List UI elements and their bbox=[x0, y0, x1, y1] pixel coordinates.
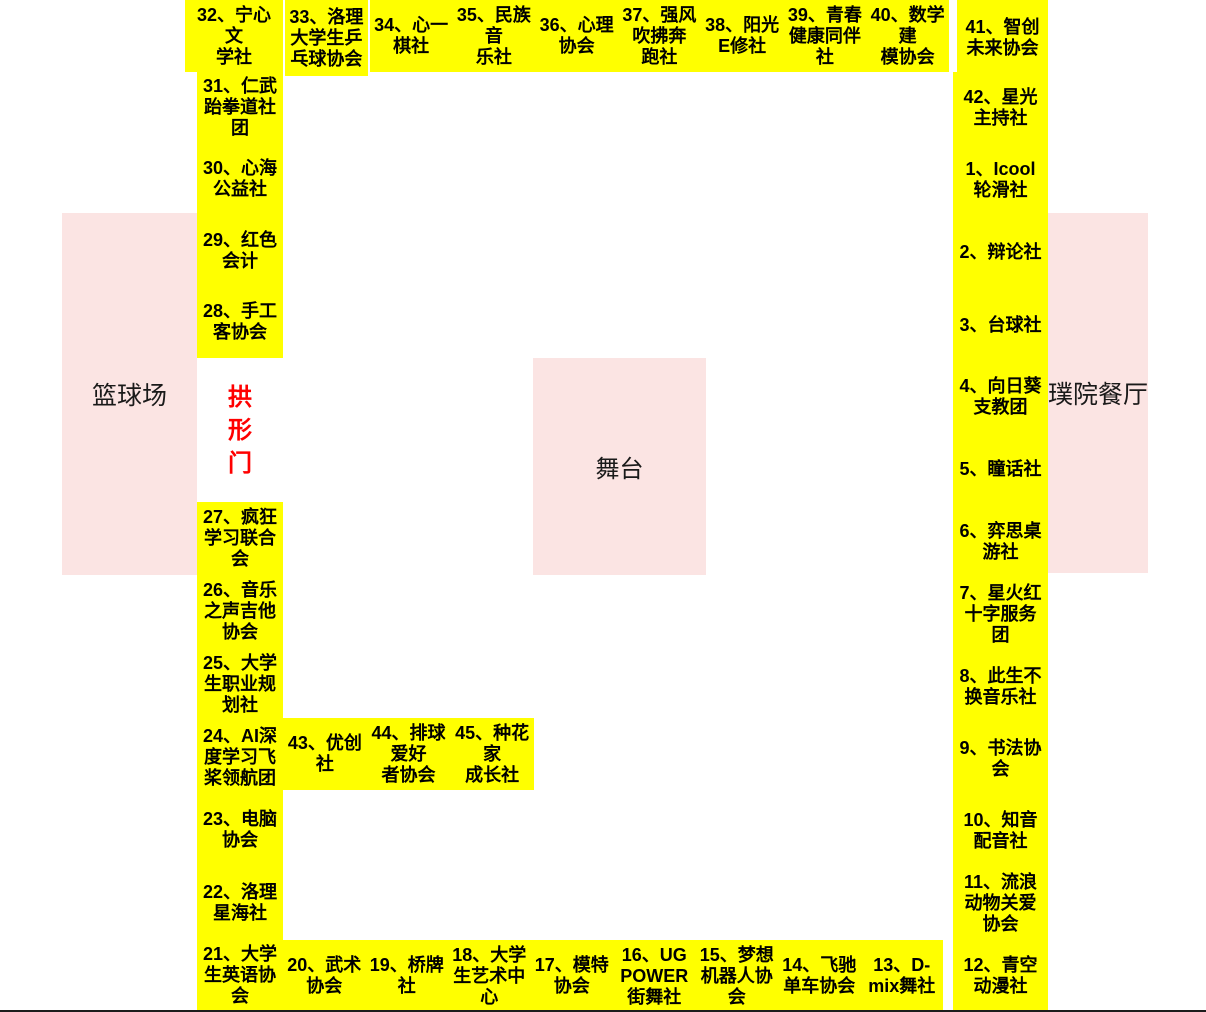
booth-36: 36、心理 协会 bbox=[535, 0, 618, 72]
booth-16: 16、UG POWER 街舞社 bbox=[613, 940, 696, 1012]
booth-20: 20、武术 协会 bbox=[283, 940, 366, 1012]
booth-8: 8、此生不 换音乐社 bbox=[953, 651, 1048, 723]
booth-15: 15、梦想 机器人协 会 bbox=[696, 940, 779, 1012]
bottom-booth-row: 20、武术 协会 19、桥牌 社 18、大学 生艺术中 心 17、模特 协会 1… bbox=[283, 940, 943, 1012]
club-fair-layout-map: 篮球场 舞台 璞院餐厅 拱 形 门 32、宁心 文 学社 33、洛理 大学生乒 … bbox=[0, 0, 1206, 1012]
booth-33: 33、洛理 大学生乒 乓球协会 bbox=[283, 0, 370, 76]
arch-gate-label: 拱 形 门 bbox=[197, 358, 283, 502]
booth-28: 28、手工 客协会 bbox=[197, 287, 283, 359]
restaurant-area: 璞院餐厅 bbox=[1048, 213, 1148, 573]
booth-17: 17、模特 协会 bbox=[531, 940, 614, 1012]
booth-3: 3、台球社 bbox=[953, 289, 1048, 361]
top-booth-row: 32、宁心 文 学社 33、洛理 大学生乒 乓球协会 34、心一 棋社 35、民… bbox=[185, 0, 1048, 72]
booth-45: 45、种花 家 成长社 bbox=[450, 718, 534, 790]
booth-27: 27、疯狂 学习联合 会 bbox=[197, 502, 283, 575]
booth-6: 6、弈思桌 游社 bbox=[953, 506, 1048, 578]
booth-39: 39、青春 健康同伴 社 bbox=[784, 0, 867, 72]
booth-7: 7、星火红 十字服务 团 bbox=[953, 578, 1048, 650]
booth-24: 24、AI深 度学习飞 桨领航团 bbox=[197, 721, 283, 794]
booth-12: 12、青空 动漫社 bbox=[953, 940, 1048, 1012]
booth-40: 40、数学 建 模协会 bbox=[866, 0, 949, 72]
booth-22: 22、洛理 星海社 bbox=[197, 866, 283, 939]
booth-18: 18、大学 生艺术中 心 bbox=[448, 940, 531, 1012]
booth-14: 14、飞驰 单车协会 bbox=[778, 940, 861, 1012]
left-booth-column-lower: 27、疯狂 学习联合 会 26、音乐 之声吉他 协会 25、大学 生职业规 划社… bbox=[197, 502, 283, 1012]
stage-label: 舞台 bbox=[596, 449, 644, 484]
booth-9: 9、书法协 会 bbox=[953, 723, 1048, 795]
booth-34: 34、心一 棋社 bbox=[370, 0, 453, 72]
booth-11: 11、流浪 动物关爱 协会 bbox=[953, 867, 1048, 939]
booth-42: 42、星光 主持社 bbox=[953, 72, 1048, 144]
booth-32: 32、宁心 文 学社 bbox=[185, 0, 283, 72]
booth-26: 26、音乐 之声吉他 协会 bbox=[197, 575, 283, 648]
booth-38: 38、阳光 E修社 bbox=[701, 0, 784, 72]
booth-2: 2、辩论社 bbox=[953, 217, 1048, 289]
booth-35: 35、民族 音 乐社 bbox=[453, 0, 536, 72]
booth-37: 37、强风 吹拂奔 跑社 bbox=[618, 0, 701, 72]
left-booth-column-upper: 31、仁武 跆拳道社 团 30、心海 公益社 29、红色 会计 28、手工 客协… bbox=[197, 72, 283, 358]
booth-19: 19、桥牌 社 bbox=[366, 940, 449, 1012]
booth-23: 23、电脑 协会 bbox=[197, 793, 283, 866]
booth-43: 43、优创社 bbox=[283, 718, 367, 790]
restaurant-label: 璞院餐厅 bbox=[1048, 375, 1148, 411]
booth-25: 25、大学 生职业规 划社 bbox=[197, 648, 283, 721]
booth-13: 13、D- mix舞社 bbox=[861, 940, 944, 1012]
booth-1: 1、Icool 轮滑社 bbox=[953, 144, 1048, 216]
basketball-court-area: 篮球场 bbox=[62, 213, 197, 575]
booth-30: 30、心海 公益社 bbox=[197, 144, 283, 216]
booth-5: 5、瞳话社 bbox=[953, 434, 1048, 506]
middle-booth-row: 43、优创社 44、排球 爱好 者协会 45、种花 家 成长社 bbox=[283, 718, 534, 790]
booth-4: 4、向日葵 支教团 bbox=[953, 361, 1048, 433]
booth-41: 41、智创 未来协会 bbox=[957, 0, 1048, 75]
booth-10: 10、知音 配音社 bbox=[953, 795, 1048, 867]
booth-29: 29、红色 会计 bbox=[197, 215, 283, 287]
booth-21: 21、大学 生英语协 会 bbox=[197, 939, 283, 1012]
booth-44: 44、排球 爱好 者协会 bbox=[367, 718, 451, 790]
stage-area: 舞台 bbox=[533, 358, 706, 575]
booth-31: 31、仁武 跆拳道社 团 bbox=[197, 72, 283, 144]
right-booth-column: 42、星光 主持社 1、Icool 轮滑社 2、辩论社 3、台球社 4、向日葵 … bbox=[953, 72, 1048, 1012]
basketball-court-label: 篮球场 bbox=[92, 376, 167, 412]
